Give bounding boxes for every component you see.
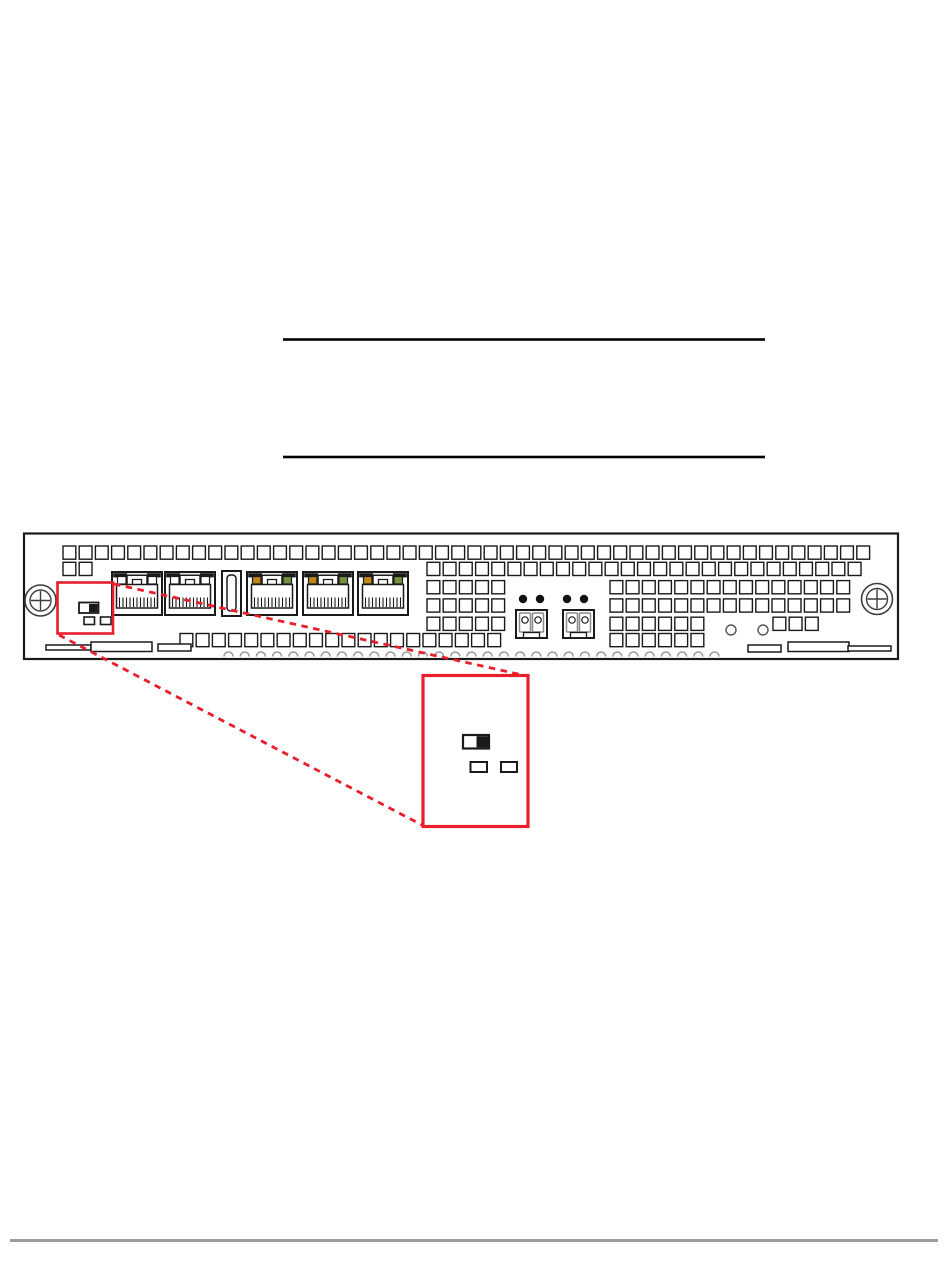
vent-hole — [63, 562, 76, 575]
vent-hole — [427, 562, 440, 575]
vent-hole — [773, 617, 786, 630]
vent-hole — [427, 617, 440, 630]
vent-hole — [193, 546, 206, 559]
vent-hole — [492, 562, 505, 575]
vent-hole — [821, 599, 834, 612]
vent-hole — [740, 581, 753, 594]
vent-hole — [245, 634, 258, 647]
port-led-green — [339, 577, 348, 585]
vent-hole — [675, 599, 688, 612]
vent-hole — [112, 546, 125, 559]
vent-hole — [691, 617, 704, 630]
vent-hole — [492, 617, 505, 630]
vent-hole — [805, 617, 818, 630]
vent-hole — [533, 546, 546, 559]
vent-hole — [598, 546, 611, 559]
vent-hole — [508, 562, 521, 575]
vent-hole — [274, 546, 287, 559]
vent-hole — [848, 562, 861, 575]
vent-hole — [626, 617, 639, 630]
vent-hole — [439, 634, 452, 647]
vent-hole — [776, 546, 789, 559]
vent-hole — [670, 562, 683, 575]
vent-hole — [322, 546, 335, 559]
vent-hole — [573, 562, 586, 575]
vent-hole — [626, 599, 639, 612]
vent-hole — [63, 546, 76, 559]
vent-hole — [614, 546, 627, 559]
vent-hole — [500, 546, 513, 559]
vent-hole — [310, 634, 323, 647]
vent-hole — [662, 546, 675, 559]
vent-hole — [642, 634, 655, 647]
vent-hole — [743, 546, 756, 559]
vent-hole — [565, 546, 578, 559]
vent-hole — [800, 562, 813, 575]
vent-hole — [626, 634, 639, 647]
ethernet-port — [358, 572, 408, 615]
vent-hole — [459, 617, 472, 630]
vent-hole — [695, 546, 708, 559]
vent-hole — [711, 546, 724, 559]
vent-hole — [212, 634, 225, 647]
vent-hole — [837, 581, 850, 594]
vent-hole — [642, 617, 655, 630]
vent-hole — [128, 546, 141, 559]
panel-hole — [726, 625, 736, 635]
vent-hole — [229, 634, 242, 647]
vent-hole — [209, 546, 222, 559]
vent-hole — [443, 562, 456, 575]
port-led-green — [394, 577, 403, 585]
vent-hole — [686, 562, 699, 575]
card-slot-opening — [227, 575, 236, 611]
fiber-port — [516, 610, 547, 638]
fiber-port — [563, 610, 594, 638]
fiber-ferrule — [535, 617, 541, 623]
vent-hole — [760, 546, 773, 559]
status-led-dot — [580, 595, 588, 603]
vent-hole — [581, 546, 594, 559]
vent-hole — [436, 546, 449, 559]
vent-hole — [691, 634, 704, 647]
vent-hole — [659, 581, 672, 594]
vent-hole — [756, 581, 769, 594]
vent-hole — [659, 599, 672, 612]
vent-hole — [355, 546, 368, 559]
extraction-handle-left — [91, 642, 152, 652]
vent-hole — [427, 599, 440, 612]
vent-hole — [723, 599, 736, 612]
vent-hole — [79, 562, 92, 575]
vent-hole — [824, 546, 837, 559]
vent-hole — [277, 634, 290, 647]
vent-hole — [808, 546, 821, 559]
vent-hole — [792, 546, 805, 559]
vent-hole — [293, 634, 306, 647]
vent-hole — [144, 546, 157, 559]
vent-hole — [468, 546, 481, 559]
vent-hole — [691, 581, 704, 594]
vent-hole — [621, 562, 634, 575]
status-led-dot — [519, 595, 527, 603]
vent-hole — [719, 562, 732, 575]
vent-hole — [783, 562, 796, 575]
vent-hole — [707, 599, 720, 612]
vent-hole — [160, 546, 173, 559]
vent-hole — [290, 546, 303, 559]
vent-hole — [257, 546, 270, 559]
dip-switch-position-mark — [101, 617, 112, 625]
page-graphics — [0, 0, 950, 1284]
status-led-dot — [536, 595, 544, 603]
vent-hole — [804, 581, 817, 594]
vent-hole — [659, 617, 672, 630]
vent-hole — [630, 546, 643, 559]
vent-hole — [772, 599, 785, 612]
vent-hole — [837, 599, 850, 612]
extraction-handle-right — [748, 645, 781, 652]
footer-rule — [10, 1239, 938, 1242]
vent-hole — [740, 599, 753, 612]
vent-hole — [306, 546, 319, 559]
vent-hole — [654, 562, 667, 575]
vent-hole — [459, 562, 472, 575]
vent-hole — [691, 599, 704, 612]
vent-hole — [407, 634, 420, 647]
vent-hole — [735, 562, 748, 575]
fiber-port-notch — [524, 633, 540, 638]
vent-hole — [476, 581, 489, 594]
vent-hole — [821, 581, 834, 594]
vent-hole — [423, 634, 436, 647]
vent-hole — [646, 546, 659, 559]
vent-hole — [517, 546, 530, 559]
vent-hole — [476, 599, 489, 612]
vent-hole — [707, 581, 720, 594]
fiber-ferrule — [582, 617, 588, 623]
vent-hole — [403, 546, 416, 559]
vent-hole — [476, 562, 489, 575]
vent-hole — [492, 581, 505, 594]
port-led-window — [201, 577, 210, 585]
vent-hole — [679, 546, 692, 559]
vent-hole — [342, 634, 355, 647]
vent-hole — [387, 546, 400, 559]
dip-switch-slider — [89, 604, 98, 612]
vent-hole — [589, 562, 602, 575]
vent-hole — [638, 562, 651, 575]
vent-hole — [261, 634, 274, 647]
callout-dip-switch-position-mark — [501, 762, 517, 772]
vent-hole — [642, 599, 655, 612]
port-led-green — [283, 577, 292, 585]
vent-hole — [459, 599, 472, 612]
vent-hole — [488, 634, 501, 647]
vent-hole — [79, 546, 92, 559]
vent-hole — [391, 634, 404, 647]
port-led-amber — [309, 577, 318, 585]
extraction-handle-right — [848, 646, 891, 651]
vent-hole — [549, 546, 562, 559]
vent-hole — [804, 599, 817, 612]
extraction-handle-left — [158, 644, 191, 651]
callout-dip-switch-slider — [477, 736, 489, 747]
document-page — [0, 0, 950, 1284]
vent-hole — [557, 562, 570, 575]
vent-hole — [95, 546, 108, 559]
vent-hole — [832, 562, 845, 575]
vent-hole — [492, 599, 505, 612]
fiber-ferrule — [522, 617, 528, 623]
vent-hole — [675, 634, 688, 647]
status-led-dot — [563, 595, 571, 603]
vent-hole — [626, 581, 639, 594]
vent-hole — [443, 581, 456, 594]
vent-hole — [241, 546, 254, 559]
vent-hole — [326, 634, 339, 647]
vent-hole — [756, 599, 769, 612]
vent-hole — [452, 546, 465, 559]
vent-hole — [702, 562, 715, 575]
vent-hole — [524, 562, 537, 575]
vent-hole — [371, 546, 384, 559]
vent-hole — [610, 599, 623, 612]
vent-hole — [723, 581, 736, 594]
vent-hole — [196, 634, 209, 647]
vent-hole — [338, 546, 351, 559]
port-led-window — [118, 577, 127, 585]
vent-hole — [459, 581, 472, 594]
vent-hole — [443, 617, 456, 630]
vent-hole — [659, 634, 672, 647]
vent-hole — [857, 546, 870, 559]
vent-hole — [772, 581, 785, 594]
vent-hole — [472, 634, 485, 647]
vent-hole — [455, 634, 468, 647]
ethernet-port — [303, 572, 353, 615]
ethernet-port — [165, 572, 215, 615]
vent-hole — [841, 546, 854, 559]
ethernet-port — [247, 572, 297, 615]
vent-hole — [789, 617, 802, 630]
vent-hole — [610, 634, 623, 647]
port-led-window — [171, 577, 180, 585]
vent-hole — [605, 562, 618, 575]
vent-hole — [176, 546, 189, 559]
vent-hole — [675, 581, 688, 594]
vent-hole — [767, 562, 780, 575]
panel-hole — [758, 625, 768, 635]
vent-hole — [788, 581, 801, 594]
fiber-port-notch — [571, 633, 587, 638]
vent-hole — [476, 617, 489, 630]
table-top-rule — [283, 338, 765, 341]
vent-hole — [642, 581, 655, 594]
port-led-amber — [364, 577, 373, 585]
vent-hole — [419, 546, 432, 559]
vent-hole — [484, 546, 497, 559]
leader-dotted-line — [59, 635, 422, 825]
vent-hole — [727, 546, 740, 559]
vent-hole — [540, 562, 553, 575]
port-led-amber — [253, 577, 262, 585]
port-led-window — [148, 577, 157, 585]
vent-hole — [443, 599, 456, 612]
callout-box — [423, 676, 528, 827]
vent-hole — [610, 581, 623, 594]
vent-hole — [610, 617, 623, 630]
vent-hole — [788, 599, 801, 612]
vent-hole — [751, 562, 764, 575]
vent-hole — [427, 581, 440, 594]
vent-hole — [225, 546, 238, 559]
table-bottom-rule — [283, 456, 765, 459]
dip-switch-position-mark — [84, 617, 95, 625]
fiber-ferrule — [569, 617, 575, 623]
vent-hole — [816, 562, 829, 575]
vent-hole — [675, 617, 688, 630]
extraction-handle-right — [788, 642, 849, 652]
device-front-panel-figure — [24, 534, 898, 660]
callout-dip-switch-position-mark — [471, 762, 488, 772]
